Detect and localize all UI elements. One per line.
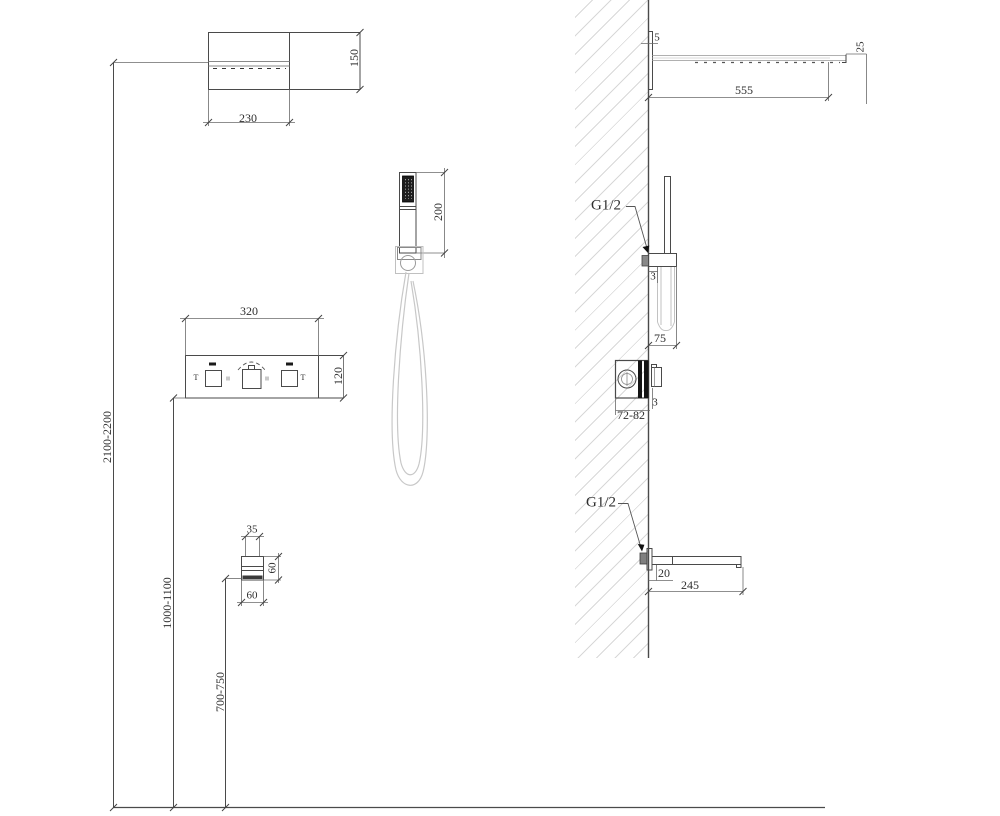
leader-arrow	[638, 544, 645, 552]
mode-icon	[265, 377, 269, 381]
dim-head-edge-height: 25	[856, 42, 867, 53]
mode-icon	[226, 377, 230, 381]
shower-installation-drawing: 230 150 200 320 120 35 60 60 2100-2200 1…	[0, 0, 1000, 816]
dim-spout-drop: 20	[658, 567, 670, 579]
dim-spout-width: 35	[247, 525, 258, 536]
dim-head-plate-offset: 5	[654, 33, 660, 44]
mode-dash-icon	[286, 363, 293, 366]
valve-knob	[652, 368, 662, 387]
dim-panel-height: 120	[332, 367, 344, 385]
dim-height-head: 2100-2200	[101, 411, 113, 463]
dim-height-panel: 1000-1100	[161, 577, 173, 629]
leader-line	[618, 504, 641, 547]
wall-union	[642, 256, 649, 267]
wall-union	[640, 553, 647, 564]
overhead-shower-side	[641, 32, 867, 105]
leader-line	[626, 207, 648, 251]
dim-panel-width: 320	[240, 305, 258, 317]
mode-dash-icon	[209, 363, 216, 366]
knob-right-mark: T	[301, 374, 306, 382]
dim-height-spout: 700-750	[214, 672, 226, 712]
trim-plate	[638, 361, 642, 399]
diverter-knob-left	[206, 371, 222, 387]
drawing-linework	[0, 0, 1000, 816]
knob-left-mark: T	[194, 374, 199, 382]
dim-head-width: 230	[239, 112, 257, 124]
spout-connection-label: G1/2	[586, 496, 616, 511]
dim-spout-height: 60	[268, 563, 279, 574]
hand-shower-side	[626, 177, 677, 350]
control-panel-front	[174, 319, 344, 399]
overhead-shower-front	[114, 33, 361, 127]
dim-valve-depth: 72-82	[617, 409, 645, 421]
dim-valve-plate-gap: 3	[652, 398, 658, 409]
hand-connection-label: G1/2	[591, 199, 621, 214]
dim-hand-shower-length: 200	[432, 203, 444, 221]
dim-spout-length: 245	[681, 579, 699, 591]
dim-hand-gap: 3	[650, 272, 656, 283]
dim-head-arm-length: 555	[735, 84, 753, 96]
diverter-knob-right	[282, 371, 298, 387]
dim-spout-depth: 60	[247, 591, 258, 602]
temperature-knob	[243, 370, 262, 389]
dim-head-depth: 150	[348, 49, 360, 67]
dim-hand-holder-depth: 75	[654, 332, 666, 344]
